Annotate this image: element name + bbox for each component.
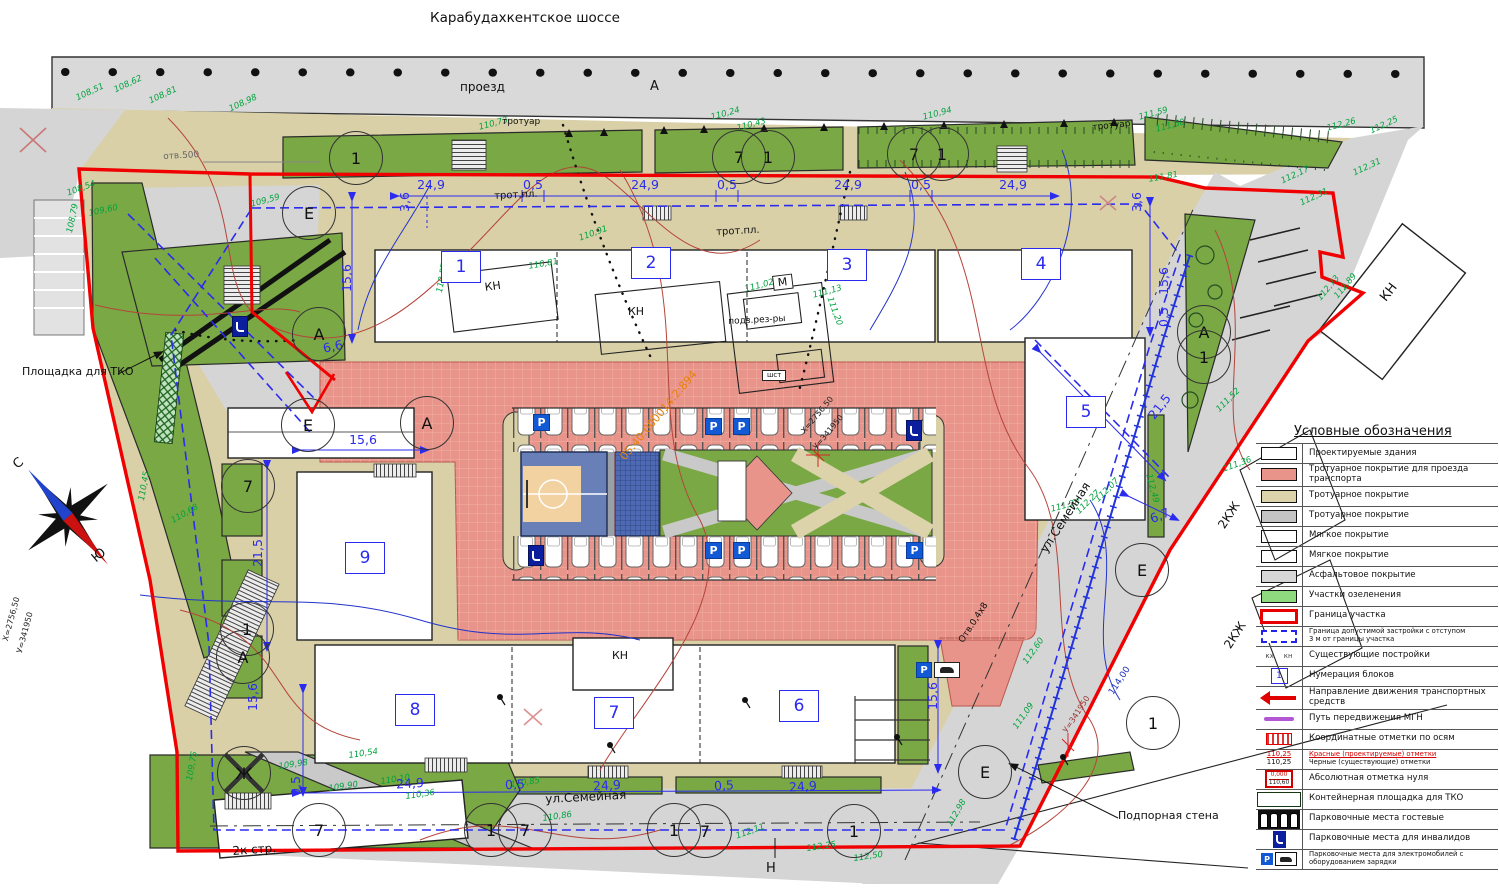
legend-label: Парковочные места для инвалидов (1303, 833, 1470, 845)
legend: Условные обозначения Проектируемые здани… (1256, 424, 1498, 870)
legend-swatch-arrow (1256, 687, 1303, 709)
block-number-swatch: 1 (1271, 668, 1288, 684)
legend-swatch-ev: P (1256, 850, 1303, 869)
coord-swatch (1266, 733, 1292, 745)
marks-swatch: 110,25110,25 (1267, 751, 1292, 766)
redborder-swatch (1260, 609, 1298, 624)
legend-row: Координатные отметки по осям (1256, 730, 1498, 750)
green-swatch (1261, 590, 1297, 603)
legend-row: PПарковочные места для электромобилей с … (1256, 850, 1498, 870)
legend-label: Тротуарное покрытие для проезда транспор… (1303, 464, 1498, 486)
legend-label: Направление движения транспортных средст… (1303, 687, 1498, 709)
legend-label: Абсолютная отметка нуля (1303, 773, 1428, 785)
disabled-parking-swatch (1273, 831, 1286, 848)
legend-swatch-green (1256, 587, 1303, 606)
legend-label: Координатные отметки по осям (1303, 733, 1455, 745)
playground (615, 452, 659, 536)
legend-row: Проектируемые здания (1256, 443, 1498, 464)
legend-row: Участки озеленения (1256, 587, 1498, 607)
tko-swatch (1257, 792, 1301, 807)
legend-label: Нумерация блоков (1303, 670, 1394, 682)
legend-label: Мягкое покрытие (1303, 530, 1389, 542)
guest-parking-row-bottom (512, 536, 936, 580)
legend-label: Тротуарное покрытие (1303, 510, 1409, 522)
legend-label: Мягкое покрытие (1303, 550, 1389, 562)
legend-row: кхкнСуществующие постройки (1256, 647, 1498, 667)
legend-swatch-redborder (1256, 607, 1303, 626)
legend-label: Граница участка (1303, 610, 1386, 622)
salmon-swatch (1261, 468, 1297, 481)
existing-parking-left (34, 200, 84, 335)
legend-swatch-disabled (1256, 830, 1303, 849)
legend-swatch-softblue (1256, 547, 1303, 566)
existing-buildings-swatch: кхкн (1265, 652, 1292, 660)
legend-swatch-salmon (1256, 464, 1303, 486)
gray-swatch (1261, 510, 1297, 523)
abszero-swatch: 0,000110,60 (1265, 770, 1293, 789)
legend-swatch-coord (1256, 730, 1303, 749)
legend-swatch-gray (1256, 507, 1303, 526)
legend-label: Асфальтовое покрытие (1303, 570, 1416, 582)
legend-swatch-tko (1256, 790, 1303, 809)
legend-label: Парковочные места для электромобилей с о… (1303, 850, 1498, 868)
site-plan-canvas: Карабудахкентское шоссе проезд А С Ю 108… (0, 0, 1499, 895)
mgn-swatch (1264, 717, 1294, 721)
legend-label: Контейнерная площадка для ТКО (1303, 793, 1463, 805)
guest-parking-row-top (512, 408, 936, 452)
legend-swatch-mgn (1256, 710, 1303, 729)
legend-row: Парковочные места гостевые (1256, 810, 1498, 830)
legend-row: Граница участка (1256, 607, 1498, 627)
legend-swatch-numbox: 1 (1256, 667, 1303, 686)
legend-swatch-tan (1256, 487, 1303, 506)
legend-swatch-kx: кхкн (1256, 647, 1303, 666)
legend-swatch-marks: 110,25110,25 (1256, 750, 1303, 769)
bluedash-swatch (1261, 630, 1297, 643)
legend-row: Тротуарное покрытие (1256, 507, 1498, 527)
legend-swatch-asph (1256, 567, 1303, 586)
tan-swatch (1261, 490, 1297, 503)
legend-label: Тротуарное покрытие (1303, 490, 1409, 502)
legend-row: 110,25110,25Красные (проектируемые) отме… (1256, 750, 1498, 770)
legend-row: Асфальтовое покрытие (1256, 567, 1498, 587)
legend-label: Красные (проектируемые) отметкиЧерные (с… (1303, 750, 1436, 768)
legend-row: Граница допустимой застройки с отступом3… (1256, 627, 1498, 647)
plaza (660, 450, 932, 536)
legend-label: Граница допустимой застройки с отступом3… (1303, 627, 1465, 645)
legend-row: Тротуарное покрытие (1256, 487, 1498, 507)
legend-row: 0,000110,60Абсолютная отметка нуля (1256, 770, 1498, 790)
legend-label: Участки озеленения (1303, 590, 1401, 602)
softred-swatch (1261, 530, 1297, 543)
legend-row: Мягкое покрытие (1256, 527, 1498, 547)
legend-row: Путь передвижения МГН (1256, 710, 1498, 730)
legend-swatch-bluedash (1256, 627, 1303, 646)
legend-swatch-white (1256, 444, 1303, 463)
car-icon (1275, 852, 1297, 866)
legend-label: Проектируемые здания (1303, 448, 1417, 460)
basketball-court (521, 452, 607, 536)
legend-row: Направление движения транспортных средст… (1256, 687, 1498, 710)
legend-row: 1Нумерация блоков (1256, 667, 1498, 687)
legend-swatch-softred (1256, 527, 1303, 546)
softblue-swatch (1261, 550, 1297, 563)
legend-row: Мягкое покрытие (1256, 547, 1498, 567)
parking-sign-p-icon: P (1261, 853, 1273, 865)
legend-row: Парковочные места для инвалидов (1256, 830, 1498, 850)
legend-row: Тротуарное покрытие для проезда транспор… (1256, 464, 1498, 487)
legend-rows: Проектируемые зданияТротуарное покрытие … (1256, 443, 1498, 870)
legend-swatch-abszero: 0,000110,60 (1256, 770, 1303, 789)
legend-row: Контейнерная площадка для ТКО (1256, 790, 1498, 810)
legend-label: Существующие постройки (1303, 650, 1430, 662)
legend-swatch-guest (1256, 810, 1303, 829)
legend-label: Парковочные места гостевые (1303, 813, 1444, 825)
ev-parking-swatch: P (1261, 852, 1297, 866)
legend-label: Путь передвижения МГН (1303, 713, 1423, 725)
legend-title: Условные обозначения (1294, 424, 1498, 439)
white-swatch (1261, 447, 1297, 460)
arrow-swatch (1270, 696, 1296, 700)
guest-parking-swatch (1258, 810, 1300, 829)
asph-swatch (1261, 570, 1297, 583)
